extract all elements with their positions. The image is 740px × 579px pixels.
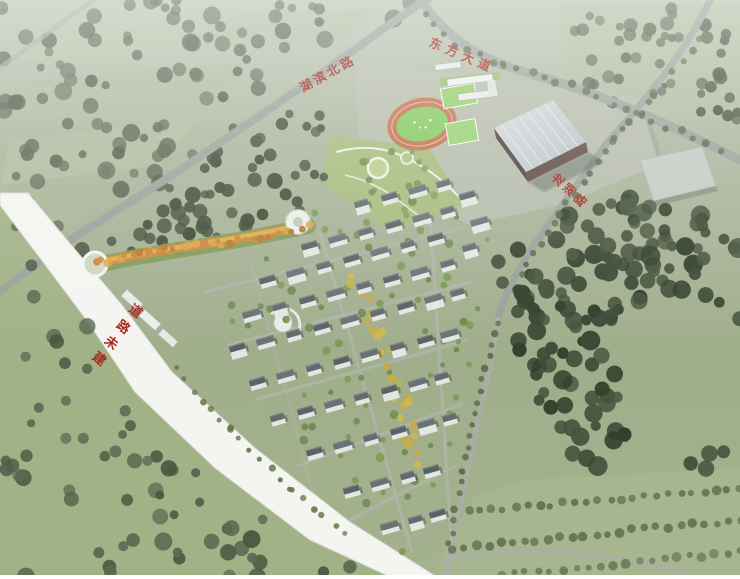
tree-clump	[27, 290, 41, 304]
tree-clump	[343, 560, 356, 573]
tree-clump	[521, 568, 528, 575]
tree-clump	[309, 423, 317, 431]
masterplan-scene	[0, 0, 740, 579]
tree-clump	[127, 453, 142, 468]
tree-clump	[591, 421, 601, 431]
tree-clump	[619, 198, 637, 216]
tree-clump	[169, 199, 181, 211]
tree-clump	[359, 158, 367, 166]
tree-clump	[346, 434, 352, 440]
tree-clump	[144, 233, 155, 244]
tree-clump	[648, 119, 654, 125]
tree-clump	[62, 118, 74, 130]
tree-clump	[122, 124, 140, 142]
tree-clump	[723, 486, 730, 493]
tree-clump	[450, 517, 457, 524]
tree-clump	[376, 453, 385, 462]
tree-clump	[472, 411, 477, 416]
tree-clump	[199, 91, 213, 105]
tree-clump	[724, 92, 735, 103]
tree-clump	[185, 187, 201, 203]
tree-clump	[679, 490, 686, 497]
tree-clump	[414, 180, 421, 187]
tree-clump	[321, 226, 328, 233]
tree-clump	[415, 297, 422, 304]
tree-clump	[696, 78, 708, 90]
tree-clump	[542, 74, 548, 80]
tree-clump	[622, 106, 630, 114]
tree-clump	[478, 376, 484, 382]
tree-clump	[512, 343, 526, 357]
tree-clump	[240, 213, 254, 227]
tree-clump	[258, 515, 268, 525]
tree-clump	[609, 497, 616, 504]
tree-clump	[367, 295, 374, 302]
tree-clump	[317, 31, 334, 48]
tree-clump	[210, 156, 222, 168]
tree-clump	[630, 52, 641, 63]
tree-clump	[165, 184, 174, 193]
tree-clump	[311, 506, 318, 513]
tree-clump	[581, 219, 594, 232]
tree-clump	[697, 90, 705, 98]
tree-clump	[276, 118, 288, 130]
tree-clump	[441, 31, 447, 37]
tree-clump	[648, 265, 660, 277]
tree-clump	[251, 34, 265, 48]
tree-clump	[485, 237, 490, 242]
tree-clump	[702, 489, 710, 497]
tree-clump	[558, 498, 567, 507]
tree-clump	[450, 506, 458, 514]
tree-clump	[631, 292, 648, 309]
tree-clump	[608, 297, 622, 311]
tree-clump	[30, 174, 45, 189]
tree-clump	[660, 280, 678, 298]
tree-clump	[414, 461, 421, 468]
tree-clump	[161, 3, 170, 12]
tree-clump	[608, 561, 617, 570]
tree-clump	[376, 300, 383, 307]
tree-clump	[487, 353, 493, 359]
tree-clump	[389, 293, 395, 299]
tree-clump	[265, 234, 271, 240]
tree-clump	[287, 286, 296, 295]
tree-clump	[696, 36, 703, 43]
tree-clump	[322, 347, 330, 355]
tree-clump	[714, 521, 721, 528]
tree-clump	[344, 376, 351, 383]
tree-clump	[78, 433, 89, 444]
tree-clump	[422, 328, 428, 334]
tree-clump	[459, 479, 465, 485]
tree-clump	[225, 240, 234, 249]
tree-clump	[617, 427, 631, 441]
tree-clump	[690, 135, 696, 141]
tree-clump	[192, 389, 198, 395]
tree-clump	[257, 457, 262, 462]
tree-clump	[26, 259, 38, 271]
tree-clump	[256, 235, 264, 243]
tree-clump	[641, 524, 649, 532]
tree-clump	[551, 79, 559, 87]
tree-clump	[717, 445, 730, 458]
tree-clump	[574, 565, 580, 571]
tree-clump	[98, 162, 116, 180]
tree-clump	[485, 542, 494, 551]
tree-clump	[342, 531, 347, 536]
tree-clump	[625, 118, 633, 126]
tree-clump	[678, 126, 686, 134]
tree-clump	[674, 32, 684, 42]
tree-clump	[161, 244, 168, 251]
tree-clump	[416, 159, 422, 165]
tree-clump	[621, 52, 632, 63]
tree-clump	[170, 247, 175, 252]
tree-clump	[245, 323, 251, 329]
tree-clump	[445, 540, 451, 546]
tree-clump	[640, 246, 660, 266]
tree-clump	[440, 362, 445, 367]
tree-clump	[519, 271, 526, 278]
tree-clump	[157, 218, 172, 233]
tree-clump	[689, 47, 697, 55]
tree-clump	[650, 92, 657, 99]
tree-clump	[661, 555, 669, 563]
tree-clump	[302, 393, 307, 398]
tree-clump	[481, 365, 489, 373]
tree-clump	[491, 255, 505, 269]
tree-clump	[545, 342, 558, 355]
tree-clump	[203, 32, 214, 43]
tree-clump	[19, 144, 32, 157]
tree-clump	[684, 456, 698, 470]
tree-clump	[466, 433, 472, 439]
tree-clump	[264, 256, 269, 261]
tree-clump	[405, 183, 412, 190]
tree-clump	[594, 532, 602, 540]
tree-clump	[279, 42, 290, 53]
tree-clump	[535, 568, 542, 575]
tree-clump	[595, 382, 610, 397]
tree-clump	[414, 449, 421, 456]
tree-clump	[669, 68, 676, 75]
tree-clump	[678, 521, 686, 529]
tree-clump	[269, 465, 276, 472]
tree-clump	[135, 248, 143, 256]
tree-clump	[714, 297, 725, 308]
tree-clump	[555, 532, 564, 541]
tree-clump	[275, 0, 285, 10]
tree-clump	[145, 248, 153, 256]
tree-clump	[237, 27, 247, 37]
tree-clump	[311, 210, 318, 217]
tree-clump	[60, 433, 71, 444]
tree-clump	[523, 262, 529, 268]
tree-clump	[203, 7, 221, 25]
tree-clump	[291, 171, 300, 180]
tree-clump	[428, 443, 433, 448]
tree-clump	[543, 400, 558, 415]
tree-clump	[37, 93, 48, 104]
tree-clump	[615, 528, 625, 538]
tree-clump	[709, 549, 719, 559]
tree-clump	[653, 493, 660, 500]
tree-clump	[604, 531, 611, 538]
tree-clump	[651, 522, 659, 530]
tree-clump	[173, 548, 183, 558]
tree-clump	[472, 540, 482, 550]
tree-clump	[157, 204, 170, 217]
tree-clump	[617, 496, 626, 505]
tree-clump	[243, 237, 248, 242]
tree-clump	[215, 36, 231, 52]
tree-clump	[536, 501, 545, 510]
tree-clump	[725, 550, 732, 557]
tree-clump	[346, 279, 355, 288]
tree-clump	[397, 262, 406, 271]
tree-clump	[285, 110, 293, 118]
tree-clump	[603, 148, 609, 154]
tree-clump	[211, 241, 217, 247]
tree-clump	[719, 234, 730, 245]
tree-clump	[195, 498, 204, 507]
tree-clump	[388, 148, 395, 155]
tree-clump	[665, 2, 677, 14]
tree-clump	[593, 94, 599, 100]
tree-clump	[275, 23, 292, 40]
tree-clump	[586, 565, 592, 571]
tree-clump	[721, 29, 731, 39]
tree-clump	[696, 107, 706, 117]
tree-clump	[233, 67, 243, 77]
tree-clump	[659, 224, 671, 236]
tree-clump	[157, 144, 171, 158]
tree-clump	[701, 31, 714, 44]
tree-clump	[646, 99, 653, 106]
park-circular-plaza	[368, 158, 388, 178]
tree-clump	[431, 21, 437, 27]
tree-clump	[640, 223, 655, 238]
tree-clump	[628, 495, 635, 502]
tree-clump	[460, 545, 467, 552]
tree-clump	[228, 301, 236, 309]
tree-clump	[192, 239, 200, 247]
tree-clump	[152, 509, 168, 525]
tree-clump	[161, 460, 177, 476]
tree-clump	[541, 357, 557, 373]
tree-clump	[568, 80, 576, 88]
tree-clump	[530, 538, 539, 547]
tree-clump	[522, 538, 529, 545]
tree-clump	[602, 252, 614, 264]
tree-clump	[200, 239, 209, 248]
tree-clump	[271, 179, 281, 189]
tree-clump	[698, 287, 714, 303]
tree-clump	[687, 552, 693, 558]
tree-clump	[474, 400, 480, 406]
tree-clump	[712, 67, 726, 81]
tree-clump	[126, 533, 140, 547]
tree-clump	[701, 445, 718, 462]
bottom-white-margin	[0, 575, 740, 579]
tree-clump	[544, 535, 554, 545]
tree-clump	[288, 4, 297, 13]
tree-clump	[475, 306, 480, 311]
tree-clump	[465, 506, 474, 515]
tree-clump	[404, 398, 412, 406]
tree-clump	[621, 559, 631, 569]
tree-clump	[318, 512, 324, 518]
tree-clump	[12, 172, 21, 181]
tree-clump	[603, 309, 618, 324]
tree-clump	[93, 547, 104, 558]
tree-clump	[565, 446, 581, 462]
tree-clump	[174, 365, 179, 370]
tree-clump	[639, 111, 645, 117]
tree-clump	[328, 390, 333, 395]
tree-clump	[410, 421, 418, 429]
tree-clump	[379, 328, 387, 336]
tree-clump	[489, 342, 495, 348]
tree-clump	[123, 36, 133, 46]
tree-clump	[183, 241, 192, 250]
tree-clump	[182, 34, 200, 52]
tree-clump	[621, 230, 633, 242]
tree-clump	[569, 320, 582, 333]
tree-clump	[411, 433, 418, 440]
tree-clump	[666, 79, 676, 89]
tree-clump	[107, 236, 117, 246]
tree-clump	[487, 504, 496, 513]
tree-clump	[308, 2, 316, 10]
tree-clump	[627, 524, 636, 533]
tree-clump	[366, 177, 373, 184]
tree-clump	[230, 318, 236, 324]
tree-clump	[698, 460, 714, 476]
tree-clump	[319, 173, 328, 182]
tree-clump	[613, 74, 624, 85]
tree-clump	[358, 309, 366, 317]
tree-clump	[466, 445, 472, 451]
tree-clump	[700, 521, 708, 529]
tree-clump	[100, 451, 111, 462]
tree-clump	[118, 541, 128, 551]
tree-clump	[101, 122, 112, 133]
tree-clump	[557, 267, 575, 285]
tree-clump	[310, 170, 319, 179]
tree-clump	[113, 181, 130, 198]
tree-clump	[586, 170, 593, 177]
tree-clump	[59, 357, 71, 369]
tree-clump	[456, 339, 462, 345]
tree-clump	[193, 204, 208, 219]
tree-clump	[722, 110, 734, 122]
tree-clump	[236, 436, 241, 441]
tree-clump	[154, 533, 172, 551]
tree-clump	[282, 316, 290, 324]
tree-clump	[511, 305, 524, 318]
tree-clump	[447, 441, 452, 446]
tree-clump	[495, 320, 501, 326]
tree-clump	[242, 55, 251, 64]
tree-clump	[215, 21, 226, 32]
tree-clump	[672, 552, 682, 562]
tree-clump	[453, 395, 459, 401]
tree-clump	[20, 450, 32, 462]
tree-clump	[288, 229, 294, 235]
tree-clump	[104, 258, 113, 267]
tree-clump	[586, 12, 594, 20]
tree-clump	[527, 358, 541, 372]
tree-clump	[365, 244, 373, 252]
tree-clump	[491, 330, 498, 337]
tree-clump	[582, 87, 590, 95]
tree-clump	[306, 221, 314, 229]
tree-clump	[629, 217, 641, 229]
tree-clump	[636, 557, 643, 564]
tree-clump	[363, 403, 368, 408]
tree-clump	[368, 325, 378, 335]
tree-clump	[387, 374, 396, 383]
tree-clump	[527, 321, 546, 340]
tree-clump	[401, 206, 408, 213]
tree-clump	[457, 490, 463, 496]
tree-clump	[142, 456, 152, 466]
tree-clump	[606, 198, 617, 209]
tree-clump	[102, 81, 110, 89]
tree-clump	[191, 468, 200, 477]
tree-clump	[248, 173, 262, 187]
tree-clump	[557, 397, 574, 414]
tree-clump	[234, 44, 247, 57]
tree-clump	[364, 317, 371, 324]
tree-clump	[125, 420, 136, 431]
tree-clump	[443, 273, 451, 281]
tree-clump	[576, 23, 589, 36]
tree-clump	[560, 219, 575, 234]
tree-clump	[655, 59, 665, 69]
tree-clump	[611, 102, 617, 108]
tree-clump	[571, 427, 589, 445]
tree-clump	[208, 406, 214, 412]
tree-clump	[501, 63, 507, 69]
tree-clump	[659, 203, 672, 216]
tree-clump	[130, 169, 139, 178]
tree-clump	[399, 548, 406, 555]
tree-clump	[226, 207, 237, 218]
tree-clump	[478, 389, 484, 395]
tree-clump	[559, 566, 568, 575]
tree-clump	[61, 396, 71, 406]
tree-clump	[428, 372, 433, 377]
tree-clump	[314, 110, 324, 120]
tree-clump	[248, 163, 257, 172]
tree-clump	[410, 149, 415, 154]
tree-clump	[555, 301, 566, 312]
tree-clump	[593, 348, 609, 364]
tree-clump	[218, 243, 224, 249]
tree-clump	[299, 226, 306, 233]
tree-clump	[423, 11, 429, 17]
tree-clump	[664, 524, 673, 533]
tree-clump	[363, 219, 370, 226]
tree-clump	[318, 304, 324, 310]
tree-clump	[380, 490, 385, 495]
tree-clump	[353, 418, 360, 425]
tree-clump	[606, 366, 623, 383]
tree-clump	[214, 182, 225, 193]
